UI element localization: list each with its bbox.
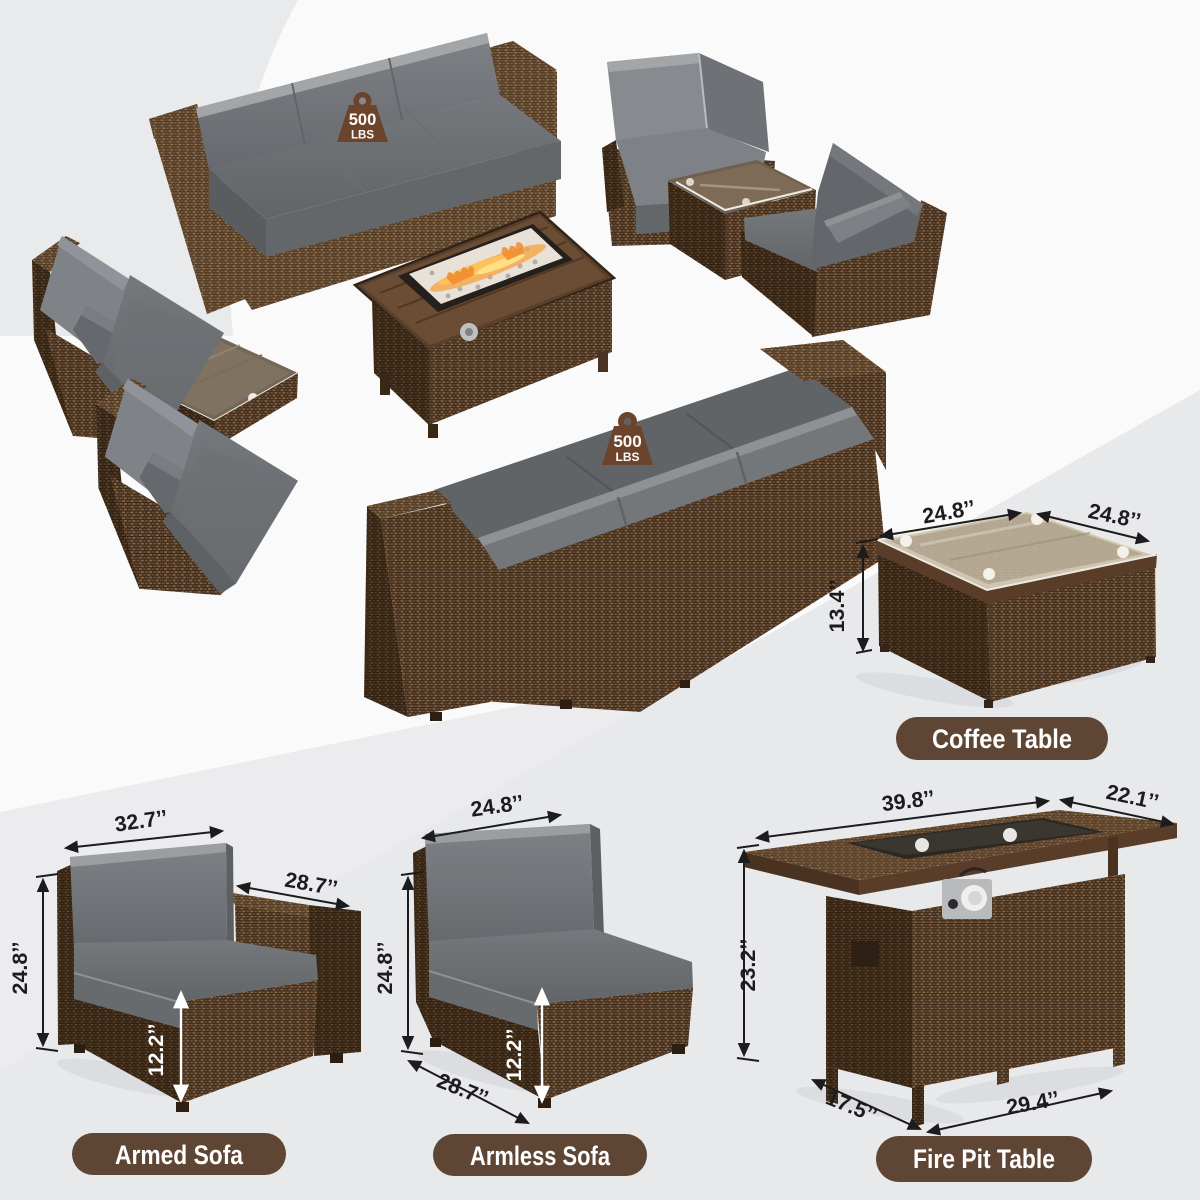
svg-text:12.2’’: 12.2’’: [502, 1029, 526, 1082]
svg-text:Coffee Table: Coffee Table: [932, 724, 1072, 754]
svg-text:Armless Sofa: Armless Sofa: [470, 1141, 611, 1171]
svg-text:23.2’’: 23.2’’: [736, 939, 760, 992]
svg-text:LBS: LBS: [351, 130, 374, 142]
svg-text:Armed Sofa: Armed Sofa: [115, 1140, 244, 1170]
svg-text:13.4’’: 13.4’’: [825, 580, 849, 633]
svg-text:Fire Pit Table: Fire Pit Table: [913, 1144, 1055, 1174]
svg-text:LBS: LBS: [616, 450, 640, 464]
svg-text:12.2’’: 12.2’’: [144, 1024, 168, 1077]
svg-text:24.8’’: 24.8’’: [373, 942, 397, 995]
svg-text:500: 500: [349, 111, 377, 129]
svg-text:500: 500: [613, 432, 641, 451]
svg-text:24.8’’: 24.8’’: [8, 942, 32, 995]
